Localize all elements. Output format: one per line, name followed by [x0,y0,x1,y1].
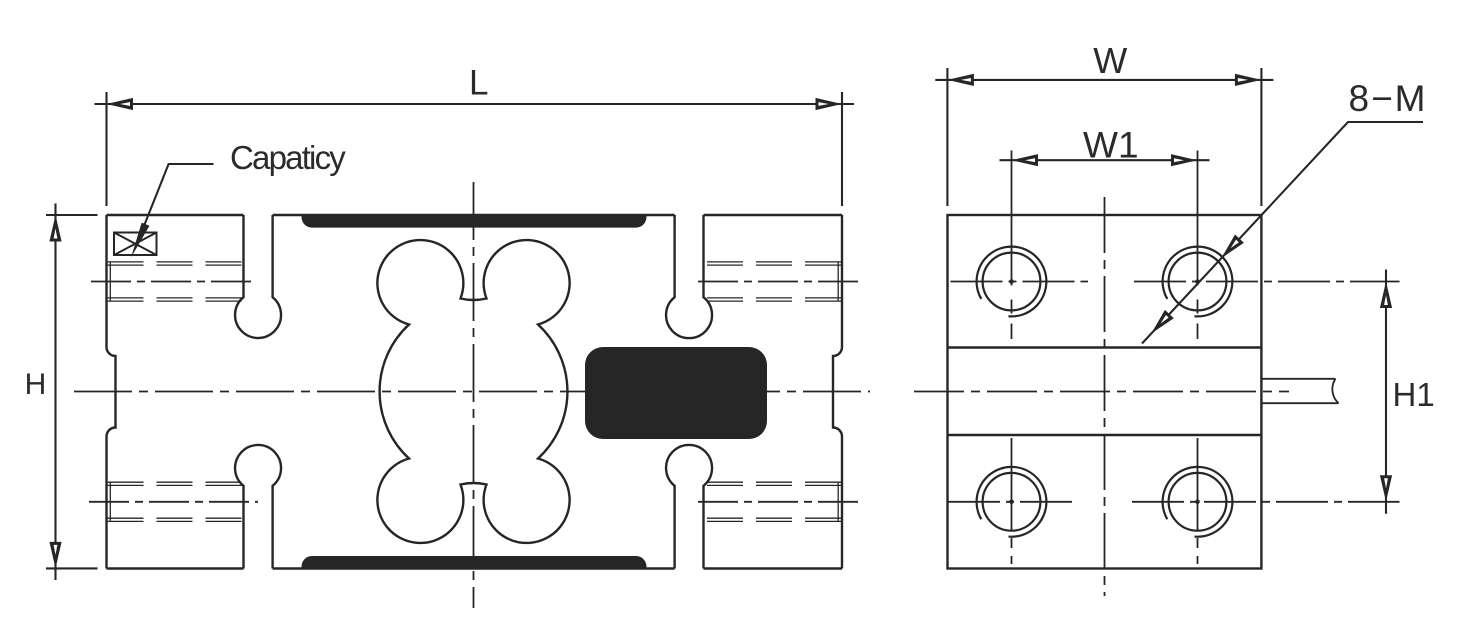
svg-text:8−M: 8−M [1349,78,1428,119]
svg-text:L: L [469,63,488,102]
svg-text:H: H [25,368,47,401]
svg-text:H1: H1 [1393,376,1435,413]
svg-text:W1: W1 [1083,125,1139,166]
svg-text:W: W [1093,40,1127,81]
svg-text:Capaticy: Capaticy [230,139,346,176]
